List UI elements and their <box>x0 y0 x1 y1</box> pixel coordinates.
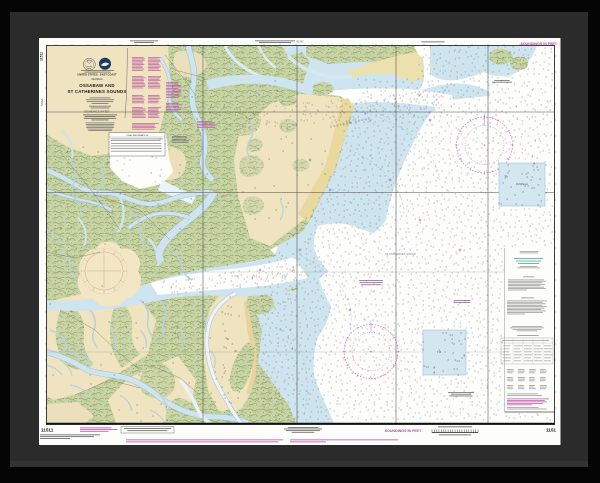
svg-text:GEORGIA: GEORGIA <box>91 78 103 81</box>
svg-text:11511: 11511 <box>41 428 54 433</box>
svg-text:ST CATHERINES SOUNDS: ST CATHERINES SOUNDS <box>67 89 126 94</box>
svg-text:1151: 1151 <box>546 428 556 433</box>
svg-text:UNITED STATES - EAST COAST: UNITED STATES - EAST COAST <box>77 72 117 76</box>
svg-text:SOUNDINGS IN FEET: SOUNDINGS IN FEET <box>520 42 557 46</box>
svg-text:TIDAL INFORMATION: TIDAL INFORMATION <box>126 134 148 137</box>
svg-text:SOUNDINGS IN FEET: SOUNDINGS IN FEET <box>385 429 422 433</box>
svg-text:NOAA: NOAA <box>40 98 44 106</box>
svg-text:SOUNDINGS IN FEET: SOUNDINGS IN FEET <box>84 111 110 114</box>
svg-text:11511: 11511 <box>40 52 44 61</box>
svg-text:81°00': 81°00' <box>297 41 304 44</box>
svg-text:Fish Haven: Fish Haven <box>516 183 529 186</box>
svg-text:ST CATHERINES SOUND: ST CATHERINES SOUND <box>385 252 416 256</box>
svg-text:OSSABAW AND: OSSABAW AND <box>79 83 114 88</box>
svg-text:F H: F H <box>437 351 441 354</box>
